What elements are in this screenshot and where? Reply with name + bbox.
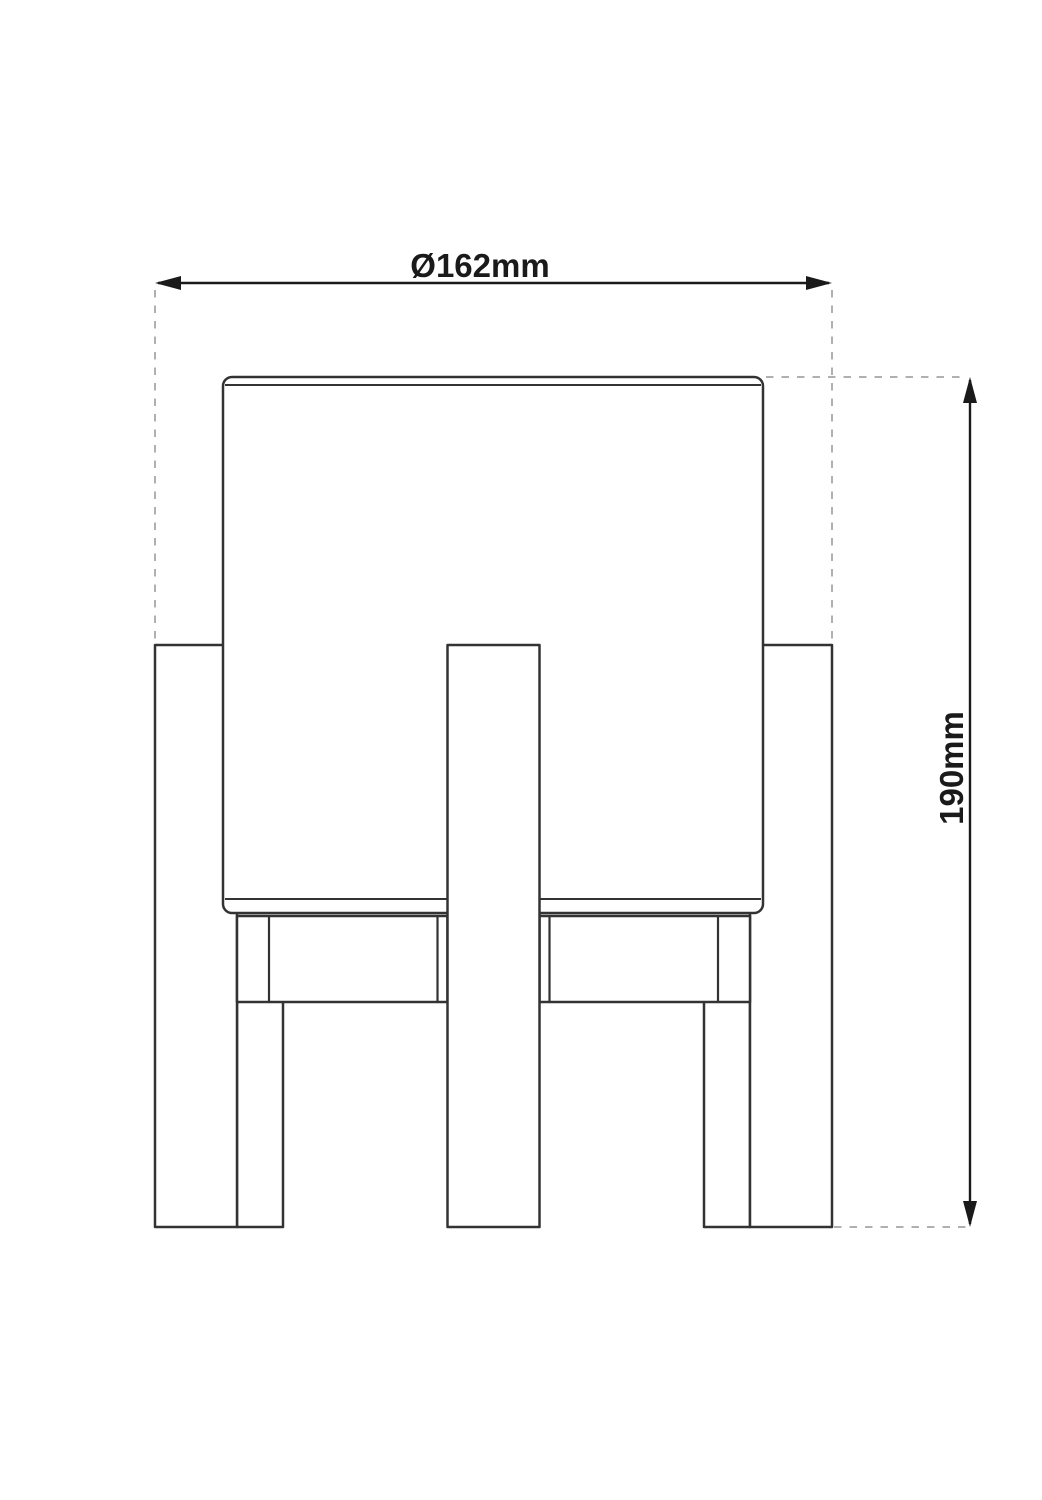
back-left-leg bbox=[237, 1000, 283, 1227]
drawing-canvas: Ø162mm 190mm bbox=[0, 0, 1042, 1500]
arrowhead-up-icon bbox=[963, 377, 977, 403]
lamp-dimension-drawing: Ø162mm 190mm bbox=[0, 0, 1042, 1500]
arrowhead-left-icon bbox=[155, 276, 181, 290]
arrowhead-down-icon bbox=[963, 1201, 977, 1227]
back-right-leg bbox=[704, 1000, 750, 1227]
diameter-label: Ø162mm bbox=[410, 247, 549, 284]
front-center-leg bbox=[448, 645, 540, 1227]
arrowhead-right-icon bbox=[806, 276, 832, 290]
height-label: 190mm bbox=[933, 711, 970, 825]
lamp-object bbox=[155, 377, 832, 1227]
